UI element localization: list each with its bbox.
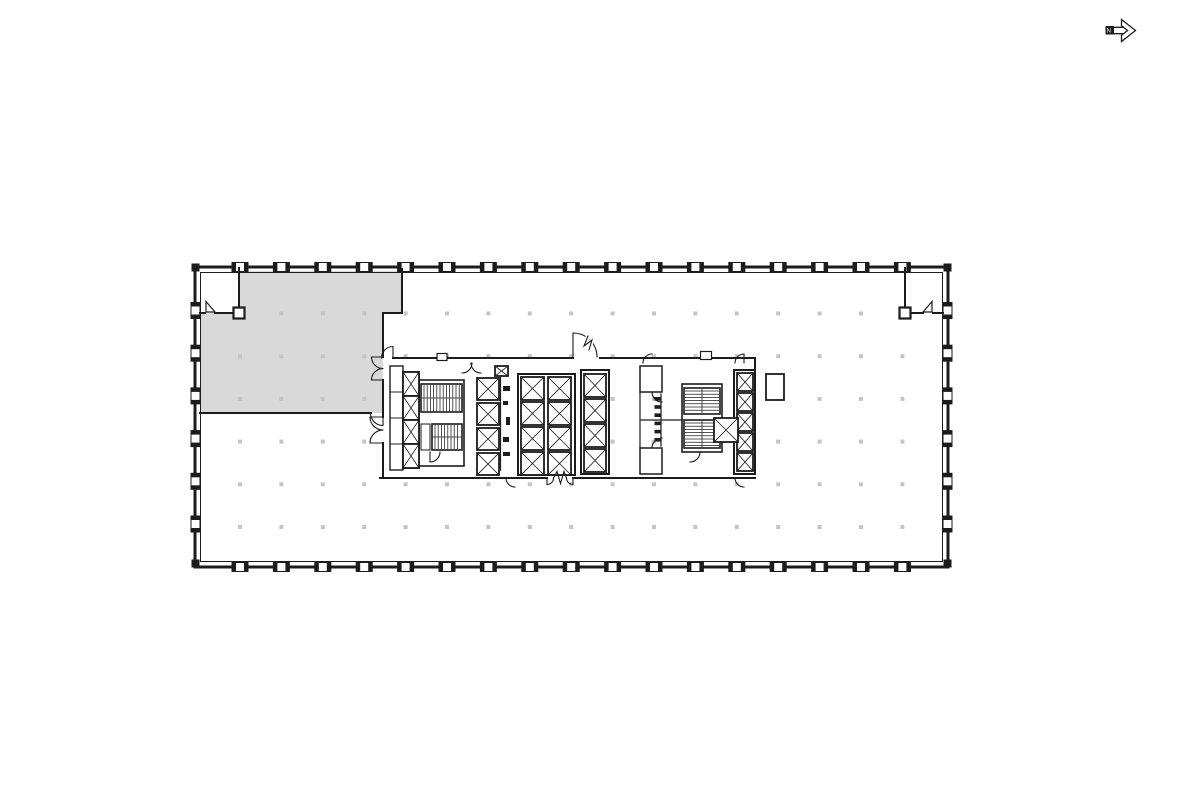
isolated-shaft — [766, 374, 784, 400]
column-top-right — [900, 308, 911, 319]
restroom-vestibule-bottom — [640, 448, 662, 474]
door-tab — [437, 354, 447, 361]
column-top-left — [234, 308, 245, 319]
floor-plan-drawing: N — [0, 0, 1200, 800]
floor-plan-stage: N — [0, 0, 1200, 800]
north-arrow: N — [1106, 20, 1136, 42]
north-arrow-label: N — [1107, 29, 1111, 35]
restroom-vestibule-top — [640, 366, 662, 392]
highlighted-suite — [200, 271, 402, 413]
north-arrow-head — [1122, 20, 1136, 42]
stair-closet — [421, 424, 430, 450]
north-arrow-shaft — [1114, 27, 1123, 33]
door-tab — [701, 352, 712, 360]
